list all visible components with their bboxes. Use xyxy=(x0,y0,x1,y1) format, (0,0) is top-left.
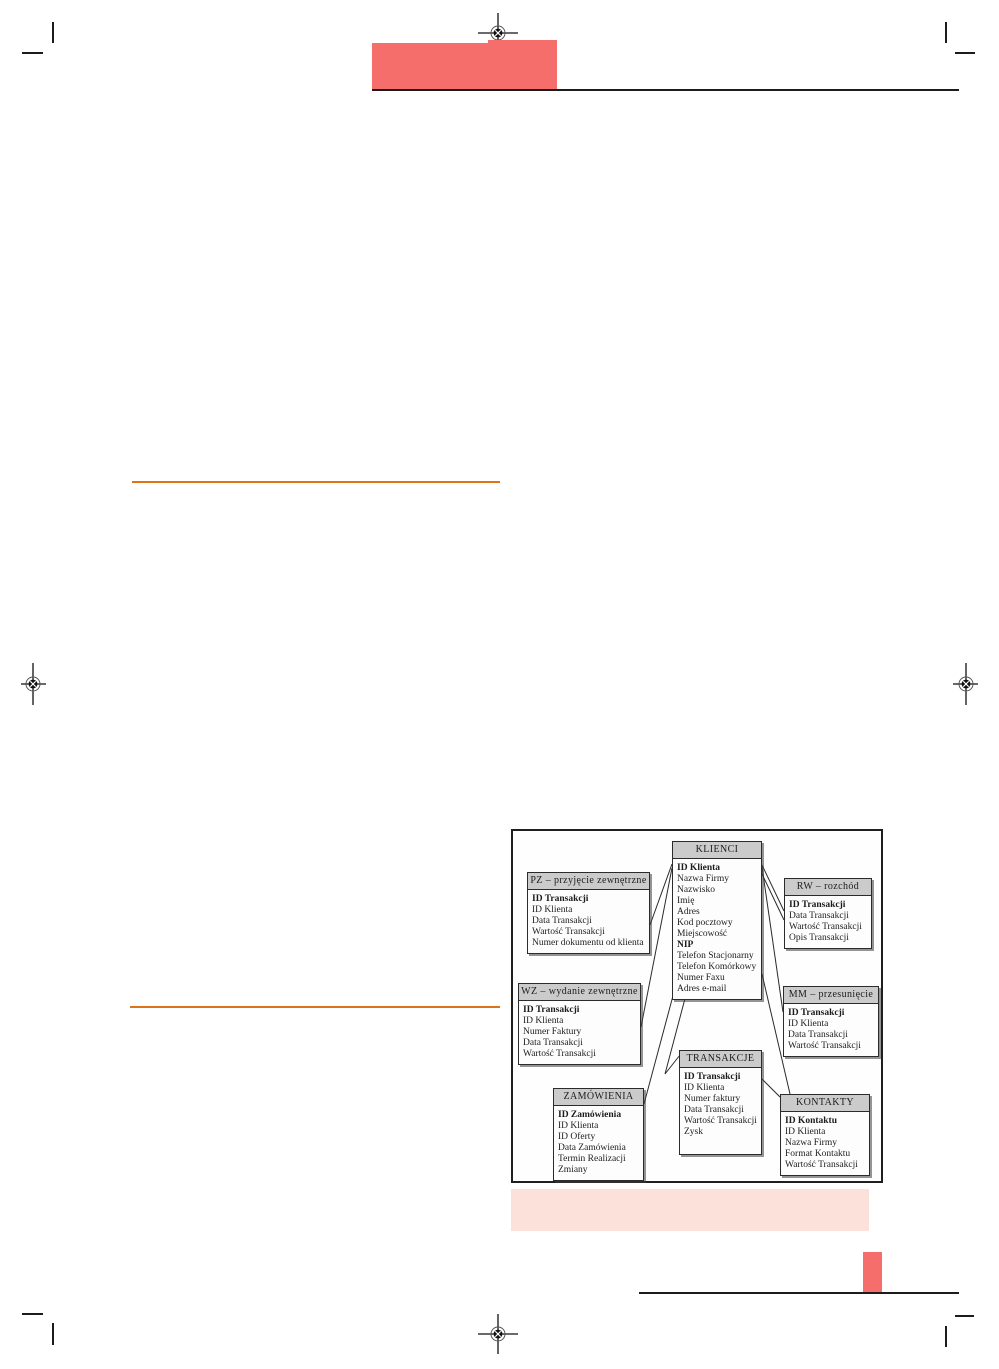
table-field: ID Transakcji xyxy=(788,1008,876,1019)
table-field: Adres xyxy=(677,907,759,918)
crop-mark xyxy=(52,22,54,43)
table-field: ID Klienta xyxy=(684,1083,759,1094)
table-field: Wartość Transakcji xyxy=(523,1049,638,1060)
crop-mark xyxy=(955,52,975,54)
table-field: Wartość Transakcji xyxy=(789,922,869,933)
table-field: Data Transakcji xyxy=(532,916,647,927)
footer-rule xyxy=(639,1292,959,1294)
table-field: Numer dokumentu od klienta xyxy=(532,938,647,949)
table-field: Telefon Komórkowy xyxy=(677,962,759,973)
relation-line xyxy=(762,1079,780,1097)
table-field: Miejscowość xyxy=(677,929,759,940)
crop-mark xyxy=(52,1323,54,1345)
table-field: Numer faktury xyxy=(684,1094,759,1105)
table-field: ID Klienta xyxy=(532,905,647,916)
table-field: Wartość Transakcji xyxy=(684,1116,759,1127)
table-field: ID Oferty xyxy=(558,1132,641,1143)
db-table-mm: MM – przesunięcie ID TransakcjiID Klient… xyxy=(783,986,879,1057)
registration-mark-icon xyxy=(944,662,988,706)
db-table-rw: RW – rozchód ID TransakcjiData Transakcj… xyxy=(784,878,872,949)
table-field: Wartość Transakcji xyxy=(788,1041,876,1052)
table-body: ID TransakcjiID KlientaNumer fakturyData… xyxy=(680,1068,761,1142)
relation-line xyxy=(762,867,783,1012)
table-field: Wartość Transakcji xyxy=(532,927,647,938)
table-field: Data Transakcji xyxy=(523,1038,638,1049)
table-field: Format Kontaktu xyxy=(785,1149,867,1160)
table-header: KLIENCI xyxy=(673,842,761,859)
table-field: Nazwisko xyxy=(677,885,759,896)
db-table-zamowienia: ZAMÓWIENIA ID ZamówieniaID KlientaID Ofe… xyxy=(553,1088,644,1181)
table-field: ID Klienta xyxy=(558,1121,641,1132)
table-field: Nazwa Firmy xyxy=(785,1138,867,1149)
table-field: ID Transakcji xyxy=(532,894,647,905)
table-header: TRANSAKCJE xyxy=(680,1051,761,1068)
section-rule xyxy=(130,1006,500,1008)
table-field: Numer Faktury xyxy=(523,1027,638,1038)
table-field: Imię xyxy=(677,896,759,907)
document-page: KLIENCI ID KlientaNazwa FirmyNazwiskoImi… xyxy=(0,0,999,1369)
table-field: Wartość Transakcji xyxy=(785,1160,867,1171)
table-body: ID KontaktuID KlientaNazwa FirmyFormat K… xyxy=(781,1112,869,1175)
registration-mark-icon xyxy=(11,662,55,706)
table-field: ID Transakcji xyxy=(789,900,869,911)
table-field: ID Zamówienia xyxy=(558,1110,641,1121)
table-field: ID Kontaktu xyxy=(785,1116,867,1127)
crop-mark xyxy=(22,1313,43,1315)
table-field: Zysk xyxy=(684,1127,759,1138)
table-header: RW – rozchód xyxy=(785,879,871,896)
table-body: ID TransakcjiID KlientaNumer FakturyData… xyxy=(519,1001,640,1064)
table-field: Kod pocztowy xyxy=(677,918,759,929)
db-table-transakcje: TRANSAKCJE ID TransakcjiID KlientaNumer … xyxy=(679,1050,762,1155)
table-field: ID Klienta xyxy=(523,1016,638,1027)
table-body: ID TransakcjiID KlientaData TransakcjiWa… xyxy=(784,1004,878,1056)
crop-mark xyxy=(955,1315,974,1317)
crop-mark xyxy=(22,52,43,54)
table-field: Data Transakcji xyxy=(788,1030,876,1041)
table-header: MM – przesunięcie xyxy=(784,987,878,1004)
caption-box xyxy=(511,1189,869,1231)
table-field: ID Klienta xyxy=(677,863,759,874)
table-field: Zmiany xyxy=(558,1165,641,1176)
table-field: ID Klienta xyxy=(785,1127,867,1138)
relation-line xyxy=(644,992,674,1104)
table-field: ID Transakcji xyxy=(684,1072,759,1083)
table-header: ZAMÓWIENIA xyxy=(554,1089,643,1106)
table-header: PZ – przyjęcie zewnętrzne xyxy=(528,873,649,890)
table-field: Telefon Stacjonarny xyxy=(677,951,759,962)
table-field: Opis Transakcji xyxy=(789,933,869,944)
table-field: ID Klienta xyxy=(788,1019,876,1030)
db-table-klienci: KLIENCI ID KlientaNazwa FirmyNazwiskoImi… xyxy=(672,841,762,1000)
header-banner xyxy=(372,43,488,91)
section-rule xyxy=(132,481,500,483)
table-field: Data Zamówienia xyxy=(558,1143,641,1154)
table-field: Termin Realizacji xyxy=(558,1154,641,1165)
table-field: ID Transakcji xyxy=(523,1005,638,1016)
table-field: Data Transakcji xyxy=(789,911,869,922)
crop-mark xyxy=(945,22,947,43)
header-rule xyxy=(372,89,959,91)
table-field: Data Transakcji xyxy=(684,1105,759,1116)
header-banner-step xyxy=(488,40,557,91)
table-header: KONTAKTY xyxy=(781,1095,869,1112)
table-header: WZ – wydanie zewnętrzne xyxy=(519,984,640,1001)
page-edge-marker xyxy=(863,1252,882,1293)
db-table-wz: WZ – wydanie zewnętrzne ID TransakcjiID … xyxy=(518,983,641,1065)
db-table-kontakty: KONTAKTY ID KontaktuID KlientaNazwa Firm… xyxy=(780,1094,870,1176)
table-field: Numer Faxu xyxy=(677,973,759,984)
table-body: ID TransakcjiData TransakcjiWartość Tran… xyxy=(785,896,871,948)
db-table-pz: PZ – przyjęcie zewnętrzne ID TransakcjiI… xyxy=(527,872,650,954)
crop-mark xyxy=(945,1326,947,1347)
table-field: Adres e-mail xyxy=(677,984,759,995)
table-field: Nazwa Firmy xyxy=(677,874,759,885)
table-field: NIP xyxy=(677,940,759,951)
relation-line xyxy=(762,874,784,920)
table-body: ID KlientaNazwa FirmyNazwiskoImięAdresKo… xyxy=(673,859,761,999)
table-body: ID TransakcjiID KlientaData TransakcjiWa… xyxy=(528,890,649,953)
registration-mark-icon xyxy=(476,1312,520,1356)
er-diagram: KLIENCI ID KlientaNazwa FirmyNazwiskoImi… xyxy=(511,829,883,1183)
table-body: ID ZamówieniaID KlientaID OfertyData Zam… xyxy=(554,1106,643,1180)
relation-line xyxy=(650,864,672,925)
